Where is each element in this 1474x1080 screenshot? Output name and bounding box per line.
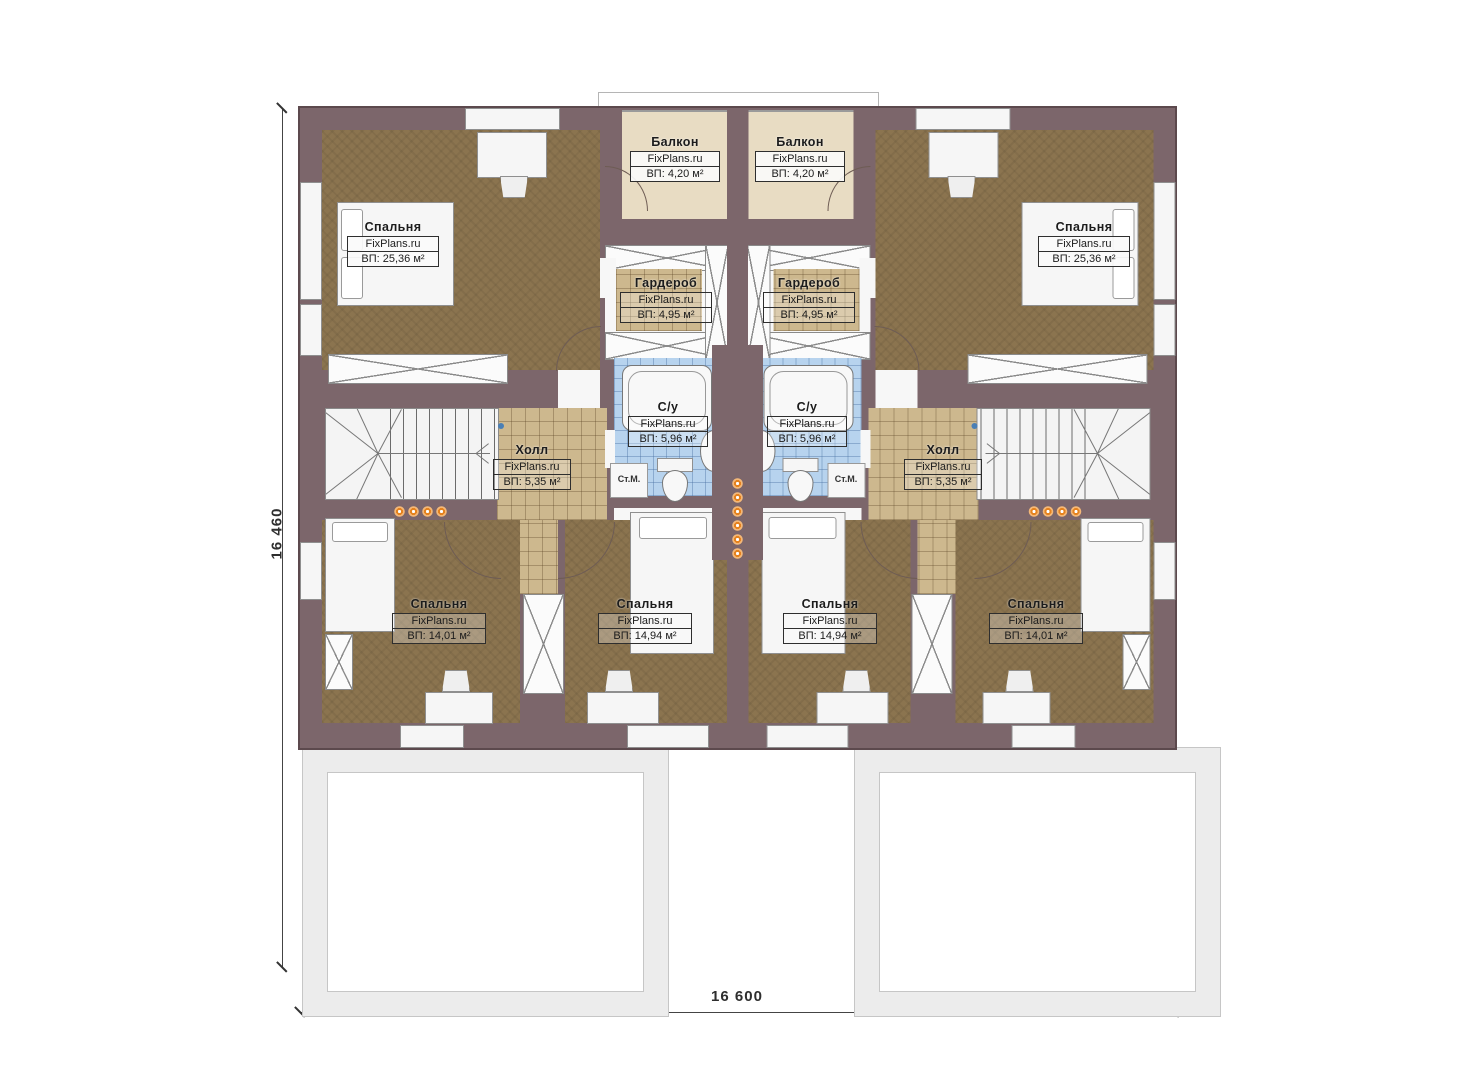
dimension-label-horizontal: 16 600 [687, 988, 787, 1005]
spotlight [732, 478, 743, 489]
room-area: ВП: 14,94 м² [599, 628, 691, 643]
room-label-bathroom-left: С/у FixPlans.ru ВП: 5,96 м² [628, 400, 708, 447]
chair [842, 670, 870, 692]
room-name: Балкон [630, 135, 720, 149]
room-label-balcony-left: Балкон FixPlans.ru ВП: 4,20 м² [630, 135, 720, 182]
watermark: FixPlans.ru [784, 614, 876, 628]
window [1153, 542, 1175, 600]
window [915, 108, 1010, 130]
terrace-right [855, 748, 1220, 1016]
room-area: ВП: 4,95 м² [621, 307, 711, 322]
room-name: Спальня [598, 597, 692, 611]
room-name: Балкон [755, 135, 845, 149]
balcony-railing [622, 110, 727, 112]
room-label-hall-right: Холл FixPlans.ru ВП: 5,35 м² [904, 443, 982, 490]
room-area: ВП: 5,35 м² [905, 474, 981, 489]
room-area: ВП: 14,01 м² [393, 628, 485, 643]
watermark: FixPlans.ru [1039, 237, 1129, 251]
room-name: С/у [767, 400, 847, 414]
room-name: Спальня [392, 597, 486, 611]
door-opening [875, 370, 917, 408]
watermark: FixPlans.ru [768, 417, 846, 431]
desk [587, 692, 659, 724]
room-name: Холл [904, 443, 982, 457]
room-name: Холл [493, 443, 571, 457]
desk [982, 692, 1050, 724]
terrace-left [303, 748, 668, 1016]
wardrobe-closet-long [328, 354, 508, 384]
staircase [325, 408, 499, 500]
room-name: Спальня [1038, 220, 1130, 234]
spotlight [732, 492, 743, 503]
window [465, 108, 560, 130]
chair [442, 670, 470, 692]
watermark: FixPlans.ru [905, 460, 981, 474]
room-name: С/у [628, 400, 708, 414]
door-opening [558, 370, 600, 408]
room-area: ВП: 5,96 м² [768, 431, 846, 446]
spotlight [1028, 506, 1039, 517]
closet [911, 594, 952, 694]
dimension-label-vertical: 16 460 [269, 489, 286, 579]
balcony-railing [748, 110, 853, 112]
window [1153, 304, 1175, 356]
watermark: FixPlans.ru [494, 460, 570, 474]
room-area: ВП: 5,35 м² [494, 474, 570, 489]
washing-machine-label-right: Ст.М. [827, 474, 865, 484]
washing-machine-label-left: Ст.М. [610, 474, 648, 484]
stair-walk-line [378, 453, 490, 454]
spotlight [732, 520, 743, 531]
watermark: FixPlans.ru [631, 152, 719, 166]
room-name: Гардероб [763, 276, 855, 290]
watermark: FixPlans.ru [621, 293, 711, 307]
spotlight [732, 534, 743, 545]
dresser [477, 132, 547, 178]
room-name: Спальня [783, 597, 877, 611]
bed-single [325, 518, 395, 632]
room-area: ВП: 25,36 м² [348, 251, 438, 266]
room-label-balcony-right: Балкон FixPlans.ru ВП: 4,20 м² [755, 135, 845, 182]
watermark: FixPlans.ru [393, 614, 485, 628]
spotlight [1042, 506, 1053, 517]
watermark: FixPlans.ru [756, 152, 844, 166]
watermark: FixPlans.ru [990, 614, 1082, 628]
window [766, 725, 848, 748]
toilet-bowl [787, 470, 813, 502]
window [1153, 182, 1175, 300]
room-name: Спальня [347, 220, 439, 234]
closet [325, 634, 353, 690]
spotlight [394, 506, 405, 517]
closet [1122, 634, 1150, 690]
window [300, 304, 322, 356]
chair [605, 670, 633, 692]
room-area: ВП: 14,94 м² [784, 628, 876, 643]
spotlight [422, 506, 433, 517]
room-label-bedroom-bottom-right: Спальня FixPlans.ru ВП: 14,01 м² [989, 597, 1083, 644]
spotlight [1056, 506, 1067, 517]
closet [523, 594, 564, 694]
room-label-hall-left: Холл FixPlans.ru ВП: 5,35 м² [493, 443, 571, 490]
spotlight [436, 506, 447, 517]
spotlight [1070, 506, 1081, 517]
room-label-bathroom-right: С/у FixPlans.ru ВП: 5,96 м² [767, 400, 847, 447]
staircase [976, 408, 1150, 500]
spotlight [732, 548, 743, 559]
bed-single [1080, 518, 1150, 632]
watermark: FixPlans.ru [348, 237, 438, 251]
floor-plan-canvas: 16 460 16 600 [0, 0, 1474, 1080]
room-label-bedroom-top-left: Спальня FixPlans.ru ВП: 25,36 м² [347, 220, 439, 267]
dresser [928, 132, 998, 178]
stair-marker-dot [498, 423, 504, 429]
spotlight [408, 506, 419, 517]
room-label-bedroom-bottom-midright: Спальня FixPlans.ru ВП: 14,94 м² [783, 597, 877, 644]
desk [816, 692, 888, 724]
room-name: Гардероб [620, 276, 712, 290]
room-area: ВП: 5,96 м² [629, 431, 707, 446]
room-area: ВП: 25,36 м² [1039, 251, 1129, 266]
desk [425, 692, 493, 724]
chair [947, 176, 975, 198]
stair-walk-line [985, 453, 1097, 454]
room-name: Спальня [989, 597, 1083, 611]
watermark: FixPlans.ru [629, 417, 707, 431]
room-area: ВП: 14,01 м² [990, 628, 1082, 643]
door-opening [859, 258, 875, 298]
room-label-wardrobe-right: Гардероб FixPlans.ru ВП: 4,95 м² [763, 276, 855, 323]
room-label-bedroom-bottom-midleft: Спальня FixPlans.ru ВП: 14,94 м² [598, 597, 692, 644]
door-opening [600, 258, 616, 298]
toilet-bowl [662, 470, 688, 502]
room-area: ВП: 4,20 м² [756, 166, 844, 181]
wardrobe-closet-long [967, 354, 1147, 384]
window [1011, 725, 1075, 748]
chair [500, 176, 528, 198]
window [627, 725, 709, 748]
room-label-bedroom-top-right: Спальня FixPlans.ru ВП: 25,36 м² [1038, 220, 1130, 267]
watermark: FixPlans.ru [599, 614, 691, 628]
window [300, 182, 322, 300]
stair-marker-dot [971, 423, 977, 429]
spotlight [732, 506, 743, 517]
room-label-bedroom-bottom-left: Спальня FixPlans.ru ВП: 14,01 м² [392, 597, 486, 644]
room-label-wardrobe-left: Гардероб FixPlans.ru ВП: 4,95 м² [620, 276, 712, 323]
window [300, 542, 322, 600]
room-area: ВП: 4,95 м² [764, 307, 854, 322]
window [400, 725, 464, 748]
room-area: ВП: 4,20 м² [631, 166, 719, 181]
chair [1005, 670, 1033, 692]
watermark: FixPlans.ru [764, 293, 854, 307]
